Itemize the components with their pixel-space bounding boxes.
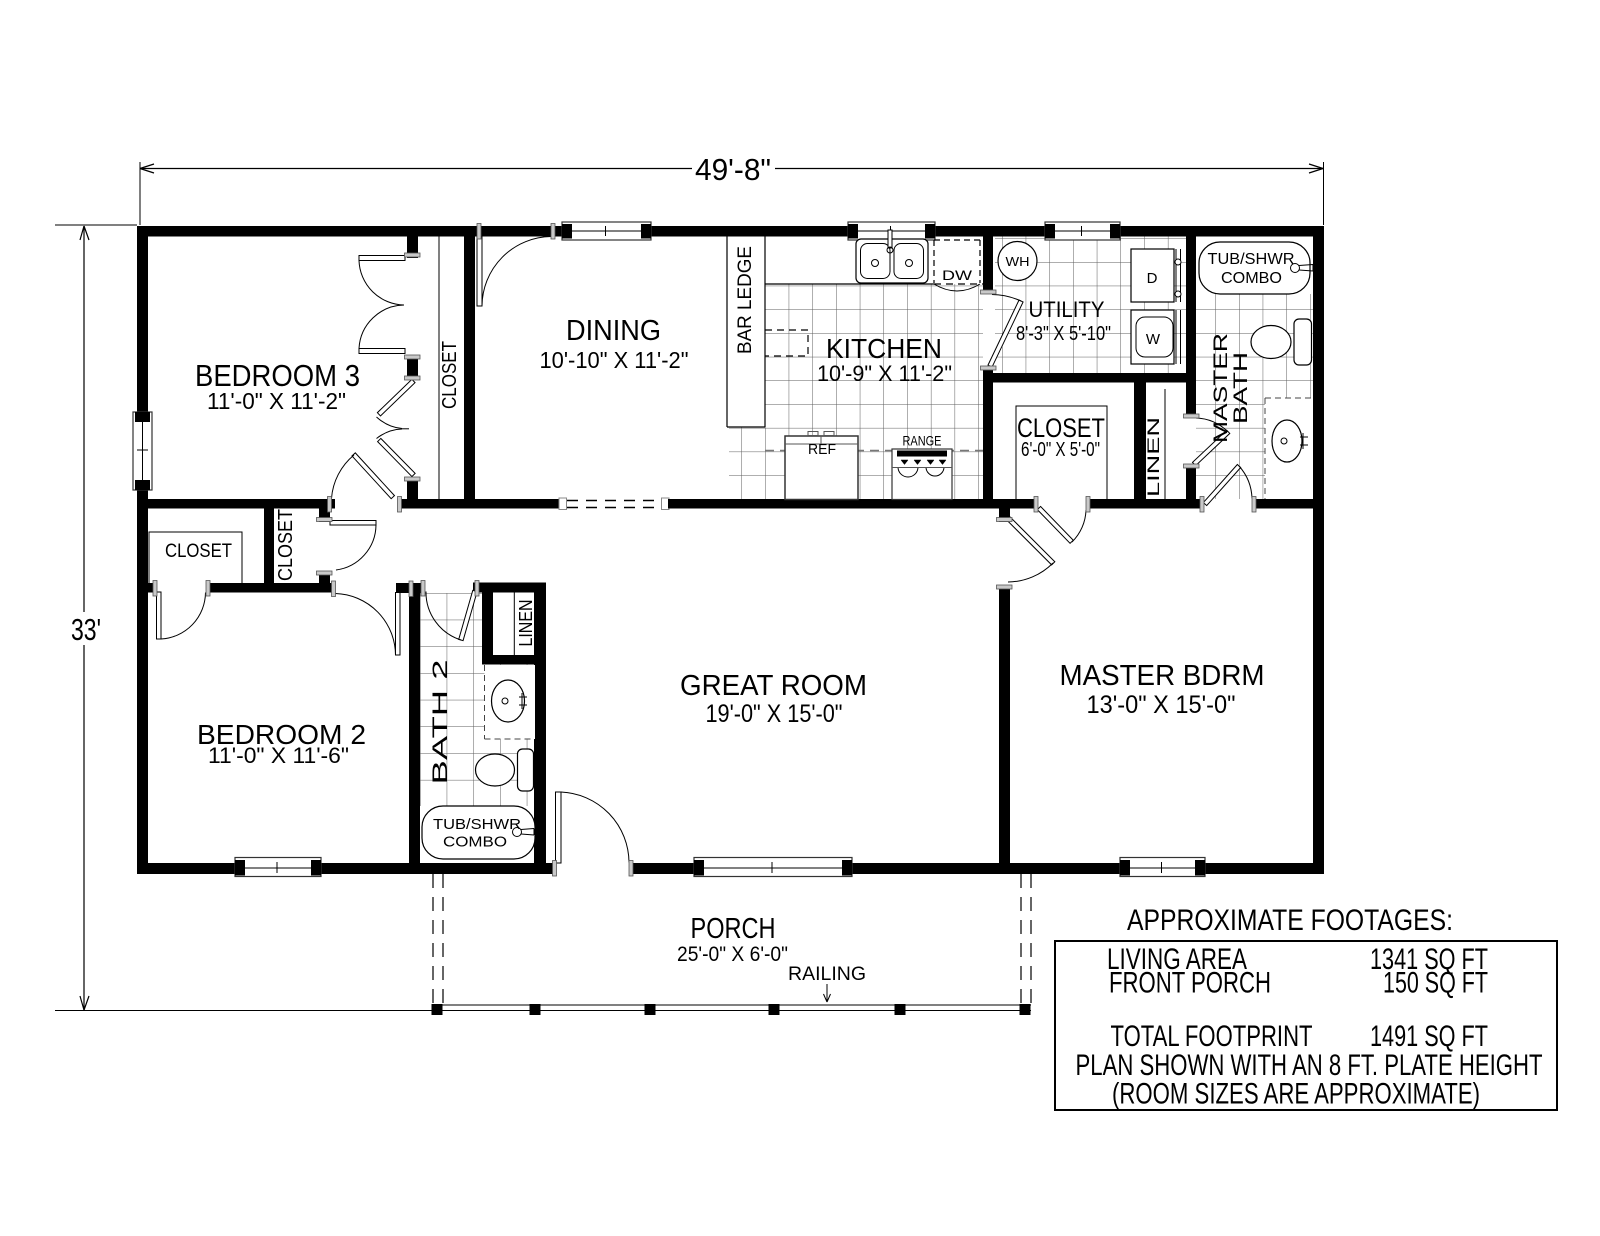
- svg-text:DINING: DINING: [566, 315, 661, 347]
- svg-text:10'-9" X 11'-2": 10'-9" X 11'-2": [817, 361, 952, 386]
- svg-text:8'-3" X 5'-10": 8'-3" X 5'-10": [1016, 323, 1111, 345]
- svg-text:LINEN: LINEN: [516, 600, 536, 647]
- svg-text:KITCHEN: KITCHEN: [826, 333, 942, 364]
- svg-text:TUB/SHWR: TUB/SHWR: [433, 816, 521, 833]
- svg-text:UTILITY: UTILITY: [1029, 297, 1105, 322]
- svg-text:RAILING: RAILING: [788, 964, 866, 985]
- svg-text:BATH 2: BATH 2: [429, 660, 452, 785]
- svg-text:WH: WH: [1006, 254, 1030, 269]
- svg-text:FRONT PORCH: FRONT PORCH: [1109, 967, 1271, 1000]
- svg-text:49'-8": 49'-8": [695, 152, 771, 187]
- svg-text:6'-0" X 5'-0": 6'-0" X 5'-0": [1021, 439, 1100, 461]
- svg-text:33': 33': [71, 612, 101, 647]
- svg-text:DW: DW: [942, 267, 973, 283]
- svg-text:25'-0" X 6'-0": 25'-0" X 6'-0": [677, 943, 788, 966]
- svg-text:COMBO: COMBO: [443, 834, 507, 851]
- svg-text:150 SQ FT: 150 SQ FT: [1383, 967, 1488, 1000]
- svg-text:19'-0" X 15'-0": 19'-0" X 15'-0": [706, 700, 843, 728]
- svg-text:GREAT ROOM: GREAT ROOM: [680, 670, 867, 702]
- svg-text:COMBO: COMBO: [1221, 270, 1282, 287]
- svg-text:MASTER: MASTER: [1211, 333, 1232, 443]
- svg-text:LINEN: LINEN: [1144, 417, 1163, 497]
- svg-text:13'-0" X 15'-0": 13'-0" X 15'-0": [1087, 691, 1236, 719]
- svg-text:11'-0" X 11'-6": 11'-0" X 11'-6": [208, 743, 349, 768]
- svg-text:D: D: [1147, 270, 1158, 287]
- svg-text:BATH: BATH: [1231, 352, 1252, 424]
- svg-text:10'-10" X 11'-2": 10'-10" X 11'-2": [540, 347, 689, 373]
- svg-text:CLOSET: CLOSET: [275, 509, 297, 581]
- svg-text:11'-0" X 11'-2": 11'-0" X 11'-2": [207, 388, 346, 414]
- svg-text:CLOSET: CLOSET: [439, 341, 461, 409]
- svg-text:RANGE: RANGE: [903, 434, 942, 449]
- svg-text:CLOSET: CLOSET: [165, 541, 232, 562]
- svg-text:PORCH: PORCH: [691, 913, 776, 945]
- svg-text:W: W: [1146, 331, 1161, 348]
- svg-text:BAR LEDGE: BAR LEDGE: [735, 246, 756, 354]
- svg-text:APPROXIMATE FOOTAGES:: APPROXIMATE FOOTAGES:: [1127, 904, 1453, 937]
- svg-text:TUB/SHWR: TUB/SHWR: [1208, 251, 1295, 268]
- svg-text:MASTER BDRM: MASTER BDRM: [1060, 660, 1265, 692]
- svg-text:REF: REF: [808, 442, 836, 458]
- svg-text:(ROOM SIZES ARE APPROXIMATE): (ROOM SIZES ARE APPROXIMATE): [1112, 1078, 1480, 1111]
